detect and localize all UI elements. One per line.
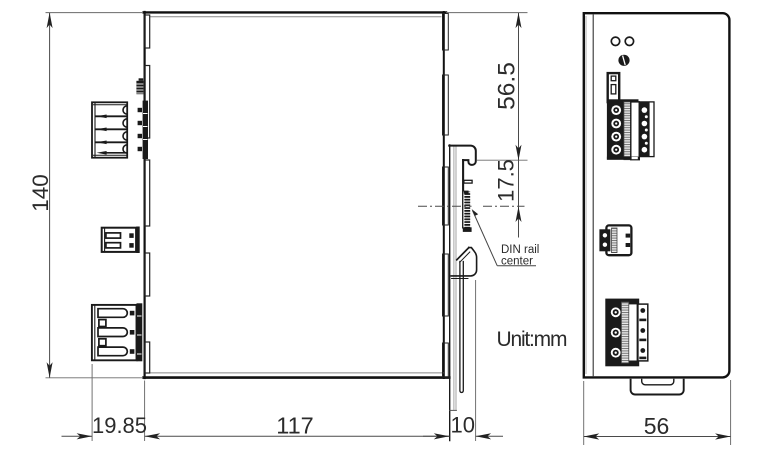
svg-text:117: 117 — [276, 413, 313, 439]
svg-text:17.5: 17.5 — [493, 159, 518, 202]
svg-text:Unit:mm: Unit:mm — [497, 328, 567, 351]
svg-text:DIN rail: DIN rail — [501, 244, 539, 256]
svg-text:140: 140 — [28, 174, 53, 212]
svg-text:56: 56 — [644, 413, 670, 439]
svg-text:center: center — [501, 255, 533, 267]
svg-text:56.5: 56.5 — [494, 62, 521, 110]
svg-text:19.85: 19.85 — [92, 413, 147, 438]
svg-text:10: 10 — [451, 413, 475, 438]
